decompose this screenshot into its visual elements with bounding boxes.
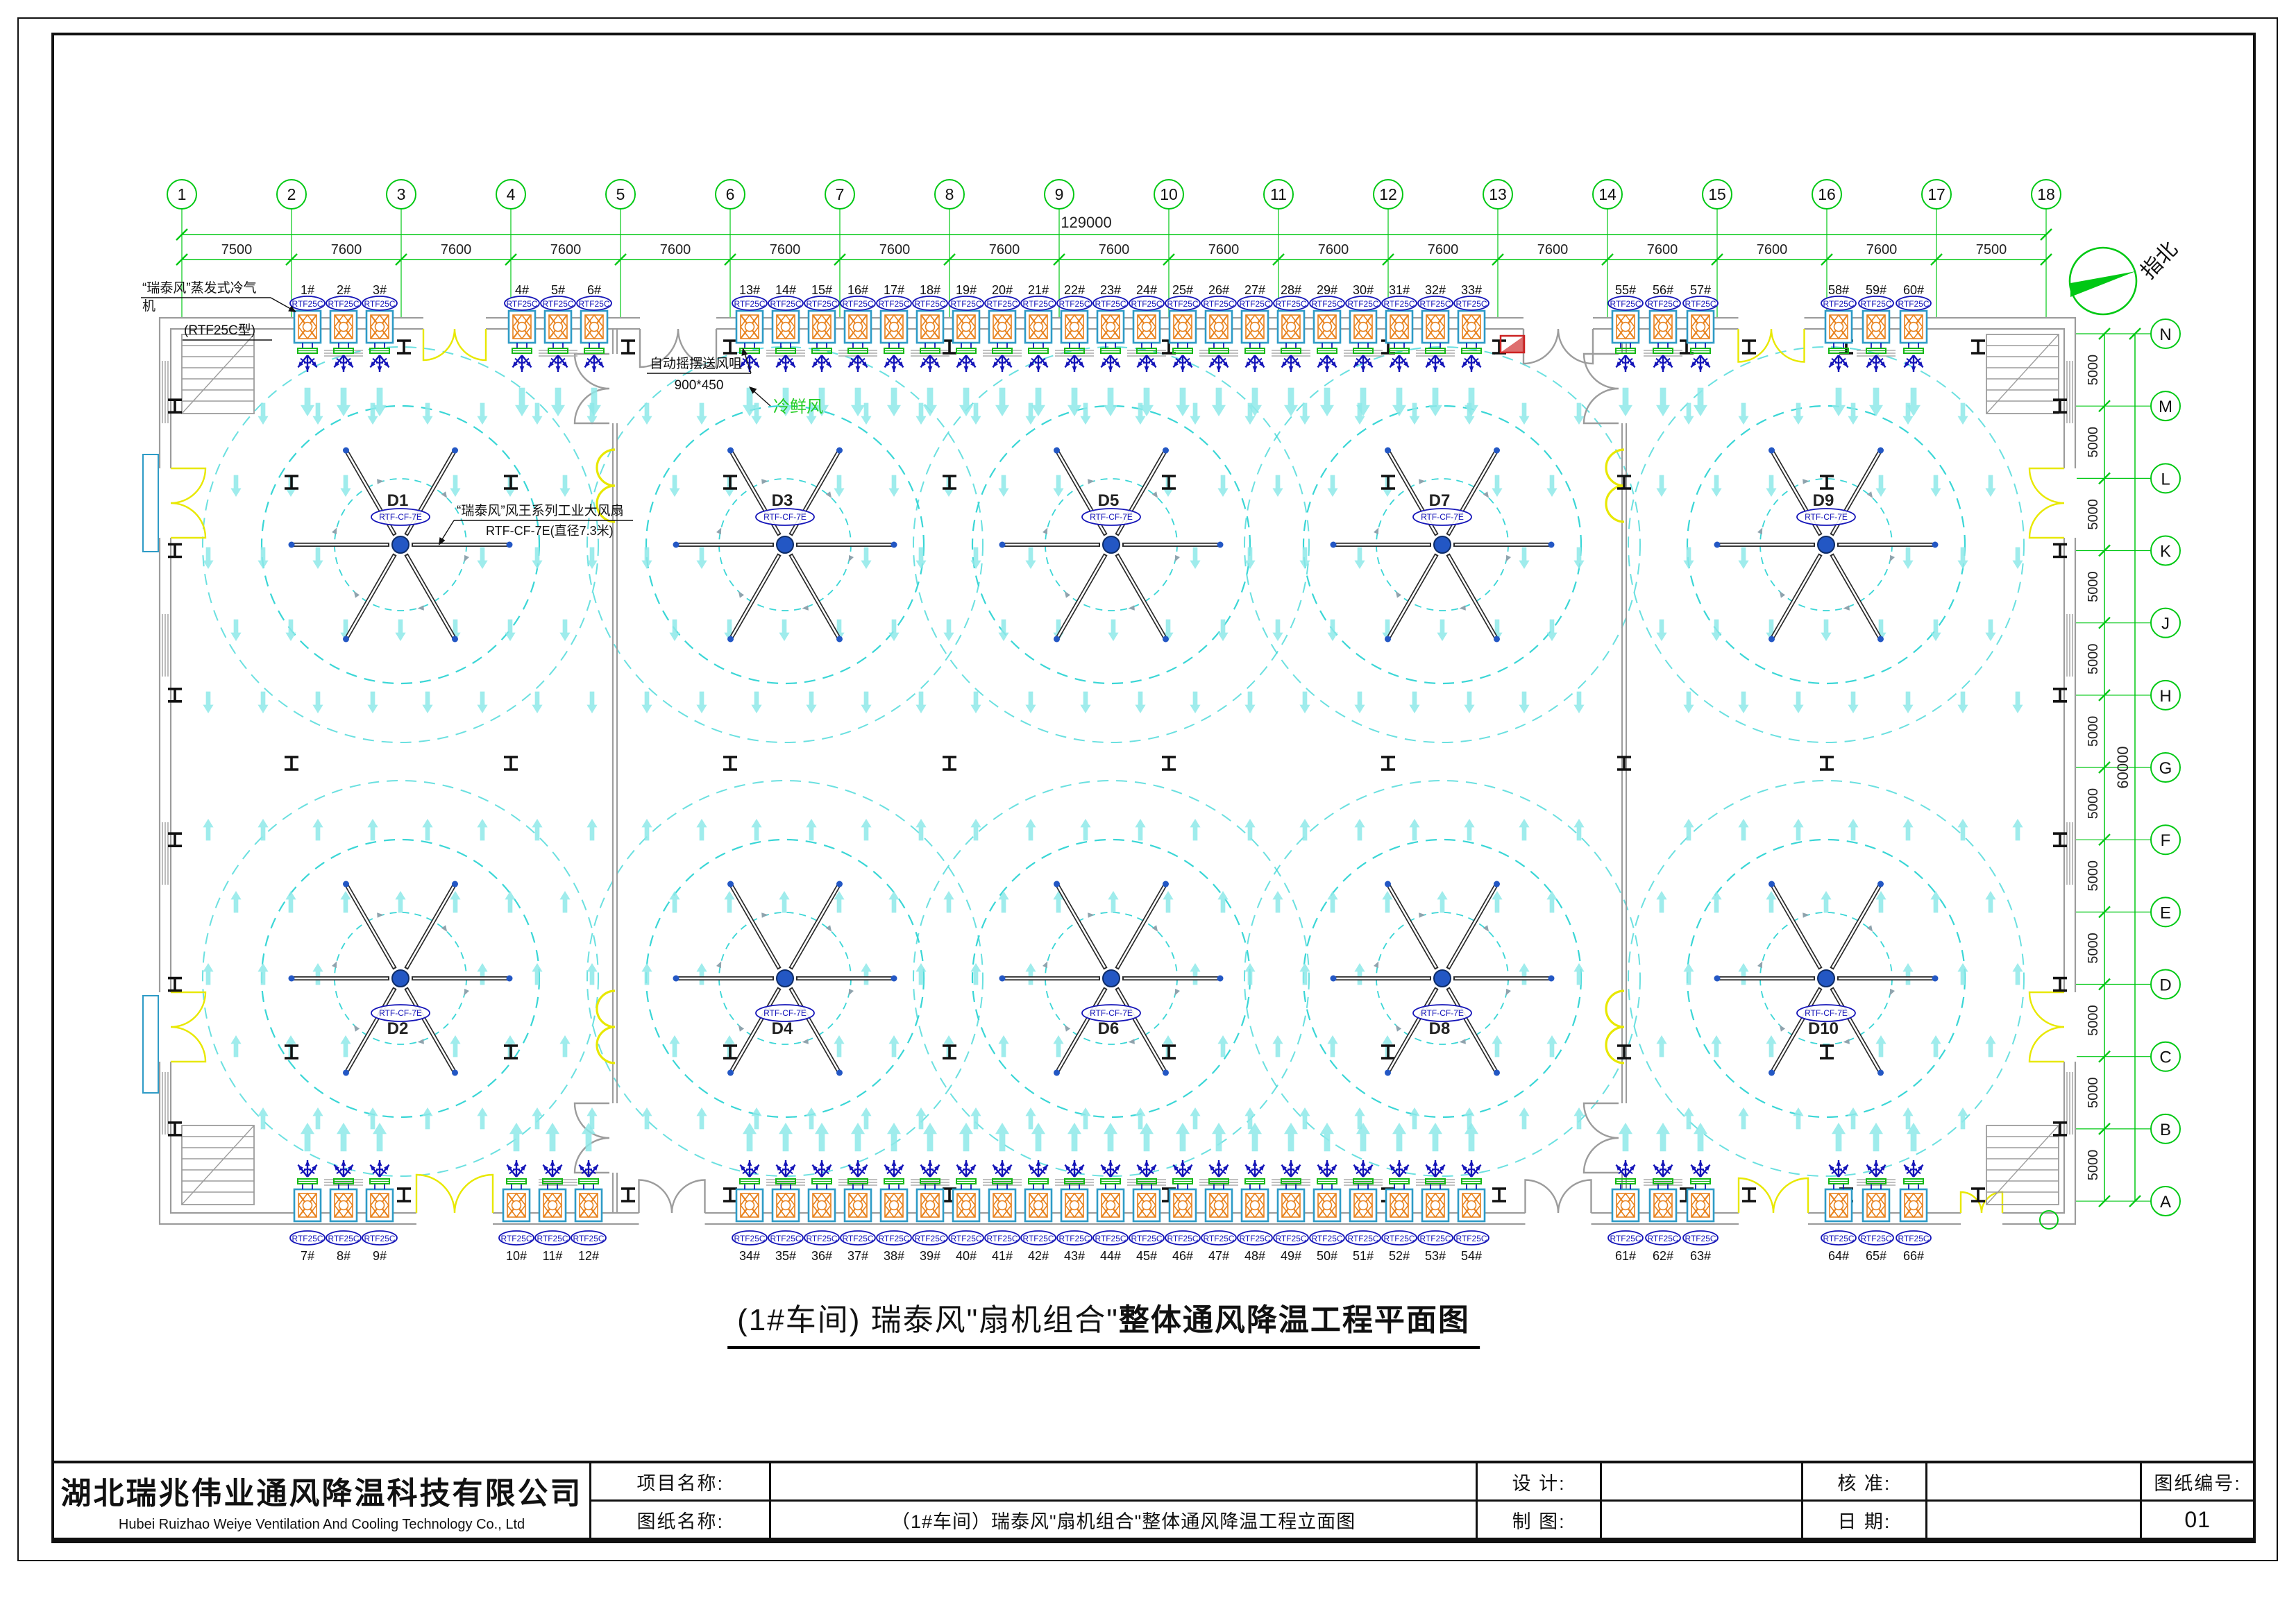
plan-title-emphasis: 整体通风降温工程平面图 (1119, 1303, 1470, 1337)
cooling-unit-38#: RTF25C38# (877, 1123, 911, 1263)
svg-text:61#: 61# (1615, 1249, 1636, 1263)
svg-text:RTF25C: RTF25C (1311, 1234, 1342, 1243)
svg-text:RTF25C: RTF25C (806, 299, 837, 309)
svg-text:25#: 25# (1172, 283, 1193, 297)
cooling-unit-53#: RTF25C53# (1418, 1123, 1453, 1263)
row-bubble-H: H (2151, 681, 2180, 710)
svg-text:5000: 5000 (2086, 427, 2101, 458)
exterior-louver (143, 996, 158, 1093)
plan-title: (1#车间) 瑞泰风"扇机组合"整体通风降温工程平面图 (727, 1295, 1480, 1349)
cooling-unit-16#: RTF25C16# (841, 283, 875, 416)
row-bubble-D: D (2151, 970, 2180, 999)
svg-text:5000: 5000 (2086, 571, 2101, 602)
svg-text:F: F (2161, 831, 2171, 850)
svg-text:RTF25C: RTF25C (1022, 299, 1054, 309)
cooling-unit-15#: RTF25C15# (804, 283, 839, 416)
window (162, 1072, 168, 1135)
svg-text:RTF25C: RTF25C (1610, 299, 1641, 309)
svg-text:RTF25C: RTF25C (1647, 299, 1678, 309)
cooling-unit-60#: RTF25C60# (1896, 283, 1931, 416)
svg-text:17#: 17# (884, 283, 904, 297)
svg-text:D4: D4 (772, 1019, 793, 1038)
window (2067, 614, 2073, 677)
svg-text:6#: 6# (587, 283, 601, 297)
svg-text:RTF25C: RTF25C (364, 299, 395, 309)
staircase-bottom-left (182, 1125, 254, 1205)
svg-text:5000: 5000 (2086, 716, 2101, 747)
svg-text:K: K (2160, 543, 2171, 561)
svg-text:5000: 5000 (2086, 1150, 2101, 1181)
svg-text:43#: 43# (1064, 1249, 1085, 1263)
steel-column (1381, 757, 1395, 770)
svg-text:26#: 26# (1208, 283, 1229, 297)
door-bottom-1 (416, 1175, 493, 1225)
steel-column (1971, 341, 1985, 353)
svg-text:7600: 7600 (989, 242, 1020, 257)
svg-text:D5: D5 (1098, 491, 1120, 510)
staircase-top-left (182, 334, 254, 414)
svg-text:7600: 7600 (660, 242, 691, 257)
steel-column (1492, 1189, 1506, 1201)
svg-text:20#: 20# (992, 283, 1013, 297)
svg-text:63#: 63# (1690, 1249, 1711, 1263)
svg-text:N: N (2159, 325, 2171, 344)
svg-text:RTF25C: RTF25C (1347, 1234, 1378, 1243)
draft-label: 制 图: (1478, 1502, 1601, 1538)
column-bubble-8: 8 (935, 180, 964, 209)
north-needle (2070, 271, 2136, 297)
door-top-1 (423, 316, 486, 360)
svg-text:5000: 5000 (2086, 860, 2101, 892)
column-bubble-18: 18 (2032, 180, 2061, 209)
svg-text:5000: 5000 (2086, 644, 2101, 675)
cooling-unit-46#: RTF25C46# (1165, 1123, 1200, 1263)
svg-text:22#: 22# (1064, 283, 1085, 297)
door-top-4 (1739, 316, 1805, 362)
window (2067, 361, 2073, 423)
svg-text:39#: 39# (920, 1249, 940, 1263)
column-bubble-5: 5 (606, 180, 635, 209)
column-bubble-6: 6 (716, 180, 745, 209)
svg-text:31#: 31# (1389, 283, 1410, 297)
door-right-1 (2029, 468, 2077, 538)
steel-column (1742, 341, 1756, 353)
svg-text:900*450: 900*450 (675, 378, 724, 393)
cooling-unit-29#: RTF25C29# (1310, 283, 1344, 416)
svg-text:24#: 24# (1136, 283, 1157, 297)
draft-value (1602, 1502, 1800, 1538)
company-name-en: Hubei Ruizhao Weiye Ventilation And Cool… (119, 1517, 525, 1533)
svg-text:7500: 7500 (1976, 242, 2007, 257)
steel-column (1971, 1189, 1985, 1201)
svg-text:“瑞泰风”蒸发式冷气: “瑞泰风”蒸发式冷气 (142, 280, 257, 296)
svg-text:G: G (2159, 759, 2172, 778)
cooling-unit-45#: RTF25C45# (1129, 1123, 1164, 1263)
svg-text:46#: 46# (1172, 1249, 1193, 1263)
svg-text:60000: 60000 (2114, 746, 2132, 788)
svg-text:16#: 16# (847, 283, 868, 297)
row-bubble-K: K (2151, 536, 2180, 566)
svg-text:RTF-CF-7E: RTF-CF-7E (1421, 1008, 1464, 1018)
door-partition-1-bottom (575, 1103, 622, 1173)
title-block-design-values (1602, 1463, 1803, 1538)
column-bubble-10: 10 (1154, 180, 1183, 209)
svg-text:7600: 7600 (1647, 242, 1678, 257)
date-label: 日 期: (1803, 1502, 1926, 1538)
steel-column (1162, 1046, 1176, 1058)
row-bubble-E: E (2151, 897, 2180, 926)
cooling-unit-11#: RTF25C11# (535, 1123, 570, 1263)
svg-text:RTF25C: RTF25C (1311, 299, 1342, 309)
svg-text:8#: 8# (337, 1249, 351, 1263)
svg-text:RTF25C: RTF25C (1167, 1234, 1198, 1243)
svg-text:7600: 7600 (1537, 242, 1569, 257)
svg-text:RTF25C: RTF25C (542, 299, 573, 309)
svg-text:18#: 18# (920, 283, 940, 297)
svg-text:7600: 7600 (1866, 242, 1898, 257)
svg-text:D3: D3 (772, 491, 793, 510)
steel-column (723, 1189, 737, 1201)
svg-text:D: D (2159, 976, 2171, 995)
svg-text:RTF25C: RTF25C (1058, 299, 1090, 309)
steel-column (943, 476, 956, 488)
cooling-unit-14#: RTF25C14# (768, 283, 803, 416)
svg-text:60#: 60# (1903, 283, 1924, 297)
title-block-design-labels: 设 计: 制 图: (1478, 1463, 1603, 1538)
svg-text:66#: 66# (1903, 1249, 1924, 1263)
svg-text:RTF25C: RTF25C (1131, 299, 1162, 309)
svg-text:RTF25C: RTF25C (1203, 299, 1234, 309)
design-label: 设 计: (1478, 1463, 1601, 1502)
row-bubble-J: J (2151, 609, 2180, 638)
title-block: 湖北瑞兆伟业通风降温科技有限公司 Hubei Ruizhao Weiye Ven… (51, 1461, 2256, 1540)
svg-text:12#: 12# (578, 1249, 599, 1263)
svg-text:(RTF25C型): (RTF25C型) (184, 323, 255, 338)
svg-text:8: 8 (945, 185, 954, 203)
svg-text:5000: 5000 (2086, 1005, 2101, 1036)
svg-text:29#: 29# (1317, 283, 1337, 297)
cooling-unit-54#: RTF25C54# (1454, 1123, 1489, 1263)
svg-text:15: 15 (1708, 185, 1726, 203)
steel-column (285, 1046, 298, 1058)
cooling-unit-4#: RTF25C4# (505, 283, 539, 416)
svg-text:RTF25C: RTF25C (1383, 1234, 1415, 1243)
cooling-unit-61#: RTF25C61# (1608, 1123, 1643, 1263)
svg-text:49#: 49# (1281, 1249, 1301, 1263)
svg-text:48#: 48# (1244, 1249, 1265, 1263)
svg-text:RTF25C: RTF25C (1455, 1234, 1487, 1243)
row-bubble-G: G (2151, 753, 2180, 782)
svg-text:A: A (2160, 1193, 2171, 1212)
cooling-unit-42#: RTF25C42# (1021, 1123, 1056, 1263)
svg-text:RTF25C: RTF25C (1095, 299, 1126, 309)
column-bubble-14: 14 (1593, 180, 1622, 209)
svg-text:冷鲜风: 冷鲜风 (773, 398, 823, 416)
steel-column (397, 1189, 411, 1201)
svg-text:RTF25C: RTF25C (1898, 1234, 1929, 1243)
svg-text:52#: 52# (1389, 1249, 1410, 1263)
cooling-unit-64#: RTF25C64# (1821, 1123, 1856, 1263)
cooling-unit-37#: RTF25C37# (841, 1123, 875, 1263)
svg-text:5#: 5# (551, 283, 565, 297)
svg-text:28#: 28# (1281, 283, 1301, 297)
svg-text:RTF25C: RTF25C (950, 1234, 981, 1243)
cooling-unit-62#: RTF25C62# (1646, 1123, 1680, 1263)
column-bubble-1: 1 (167, 180, 196, 209)
door-partition-1-top (575, 354, 622, 423)
cooling-unit-22#: RTF25C22# (1057, 283, 1092, 416)
steel-column (621, 341, 635, 353)
floor-plan-drawing: 1234567891011121314151617181290007500760… (0, 0, 2296, 1623)
svg-text:RTF25C: RTF25C (1275, 299, 1306, 309)
svg-text:2#: 2# (337, 283, 351, 297)
plan-title-prefix: (1#车间) 瑞泰风"扇机组合" (737, 1303, 1119, 1337)
svg-text:E: E (2160, 903, 2171, 922)
svg-text:12: 12 (1379, 185, 1397, 203)
cooling-unit-49#: RTF25C49# (1274, 1123, 1308, 1263)
svg-text:9#: 9# (373, 1249, 387, 1263)
door-left-1 (158, 468, 205, 538)
window (2067, 1072, 2073, 1135)
svg-text:11#: 11# (543, 1249, 563, 1263)
steel-column (943, 1046, 956, 1058)
steel-column (1820, 1046, 1834, 1058)
design-value (1602, 1463, 1800, 1502)
svg-text:RTF25C: RTF25C (1898, 299, 1929, 309)
steel-column (723, 341, 737, 353)
cooling-unit-8#: RTF25C8# (326, 1123, 361, 1263)
cooling-unit-58#: RTF25C58# (1821, 283, 1856, 416)
cooling-unit-2#: RTF25C2# (326, 283, 361, 416)
svg-text:17: 17 (1927, 185, 1945, 203)
svg-text:RTF25C: RTF25C (986, 1234, 1018, 1243)
column-bubble-7: 7 (825, 180, 854, 209)
svg-text:5000: 5000 (2086, 499, 2101, 530)
row-bubble-L: L (2151, 464, 2180, 493)
svg-text:32#: 32# (1425, 283, 1446, 297)
svg-text:27#: 27# (1244, 283, 1265, 297)
svg-text:37#: 37# (847, 1249, 868, 1263)
steel-column (943, 757, 956, 770)
svg-text:7: 7 (836, 185, 845, 203)
cooling-unit-17#: RTF25C17# (877, 283, 911, 416)
cooling-unit-41#: RTF25C41# (985, 1123, 1020, 1263)
svg-text:RTF25C: RTF25C (1419, 299, 1451, 309)
column-bubble-11: 11 (1264, 180, 1293, 209)
svg-text:RTF25C: RTF25C (1685, 1234, 1716, 1243)
svg-text:RTF25C: RTF25C (328, 1234, 359, 1243)
fire-hydrant-symbol (1501, 336, 1524, 352)
svg-text:RTF25C: RTF25C (328, 299, 359, 309)
drawing-name-label: 图纸名称: (591, 1502, 769, 1538)
svg-text:RTF-CF-7E: RTF-CF-7E (379, 1008, 422, 1018)
big-fan-D7: RTF-CF-7ED7 (1331, 448, 1555, 643)
svg-text:RTF25C: RTF25C (1022, 1234, 1054, 1243)
door-bottom-2 (639, 1180, 705, 1226)
cooling-unit-30#: RTF25C30# (1346, 283, 1381, 416)
svg-text:1: 1 (178, 185, 187, 203)
door-right-2 (2029, 992, 2077, 1062)
svg-text:30#: 30# (1353, 283, 1374, 297)
title-block-approve-labels: 核 准: 日 期: (1803, 1463, 1928, 1538)
partition-wall-2 (1622, 329, 1626, 1213)
svg-text:50#: 50# (1317, 1249, 1337, 1263)
window (162, 822, 168, 885)
svg-text:D9: D9 (1813, 491, 1834, 510)
svg-text:47#: 47# (1208, 1249, 1229, 1263)
cooling-unit-26#: RTF25C26# (1201, 283, 1236, 416)
svg-text:RTF25C: RTF25C (734, 299, 765, 309)
svg-text:RTF25C: RTF25C (1095, 1234, 1126, 1243)
cooling-unit-52#: RTF25C52# (1382, 1123, 1417, 1263)
svg-text:D6: D6 (1098, 1019, 1120, 1038)
svg-text:34#: 34# (739, 1249, 760, 1263)
row-bubble-A: A (2151, 1187, 2180, 1216)
cooling-unit-9#: RTF25C9# (362, 1123, 397, 1263)
svg-text:54#: 54# (1461, 1249, 1482, 1263)
big-fan-D1: RTF-CF-7ED1 (289, 448, 513, 643)
svg-text:RTF25C: RTF25C (1860, 1234, 1891, 1243)
north-label: 指北 (2136, 237, 2181, 283)
cooling-unit-32#: RTF25C32# (1418, 283, 1453, 416)
cooling-unit-63#: RTF25C63# (1683, 1123, 1718, 1263)
cooling-unit-12#: RTF25C12# (571, 1123, 606, 1263)
svg-text:129000: 129000 (1061, 214, 1111, 231)
cooling-unit-7#: RTF25C7# (290, 1123, 325, 1263)
steel-column (1742, 1189, 1756, 1201)
svg-text:11: 11 (1270, 185, 1287, 203)
svg-text:33#: 33# (1461, 283, 1482, 297)
svg-text:RTF25C: RTF25C (878, 1234, 909, 1243)
steel-column (1617, 757, 1631, 770)
north-compass: 指北 (2070, 237, 2182, 314)
svg-text:RTF25C: RTF25C (292, 1234, 323, 1243)
steel-column (723, 1046, 737, 1058)
svg-text:5000: 5000 (2086, 355, 2101, 386)
svg-text:7600: 7600 (1428, 242, 1459, 257)
staircase-top-right (1986, 334, 2059, 414)
svg-text:5000: 5000 (2086, 788, 2101, 819)
steel-column (1381, 1046, 1395, 1058)
svg-text:RTF25C: RTF25C (806, 1234, 837, 1243)
column-bubble-2: 2 (277, 180, 306, 209)
svg-text:7500: 7500 (221, 242, 253, 257)
sheet-number-value: 01 (2142, 1502, 2253, 1538)
svg-text:23#: 23# (1100, 283, 1121, 297)
svg-text:RTF25C: RTF25C (1647, 1234, 1678, 1243)
svg-text:RTF25C: RTF25C (1419, 1234, 1451, 1243)
svg-text:D10: D10 (1808, 1019, 1839, 1038)
svg-text:C: C (2159, 1048, 2171, 1067)
svg-text:D2: D2 (387, 1019, 409, 1038)
steel-column (1617, 1046, 1631, 1058)
cooling-unit-66#: RTF25C66# (1896, 1123, 1931, 1263)
svg-text:RTF-CF-7E: RTF-CF-7E (1090, 1008, 1133, 1018)
steel-column (285, 476, 298, 488)
big-fan-D5: RTF-CF-7ED5 (999, 448, 1224, 643)
svg-text:RTF25C: RTF25C (292, 299, 323, 309)
steel-column (285, 757, 298, 770)
svg-text:RTF-CF-7E: RTF-CF-7E (1805, 512, 1848, 522)
window (2067, 822, 2073, 885)
svg-text:7600: 7600 (879, 242, 911, 257)
svg-text:45#: 45# (1136, 1249, 1157, 1263)
svg-text:58#: 58# (1828, 283, 1849, 297)
row-bubble-F: F (2151, 825, 2180, 854)
svg-text:19#: 19# (956, 283, 977, 297)
row-bubble-B: B (2151, 1114, 2180, 1144)
svg-text:65#: 65# (1866, 1249, 1886, 1263)
column-bubble-12: 12 (1374, 180, 1403, 209)
svg-text:13: 13 (1489, 185, 1507, 203)
svg-text:3#: 3# (373, 283, 387, 297)
cooling-unit-35#: RTF25C35# (768, 1123, 803, 1263)
svg-text:RTF25C: RTF25C (1383, 299, 1415, 309)
door-bottom-3 (1526, 1180, 1592, 1226)
svg-text:D1: D1 (387, 491, 409, 510)
cooling-unit-6#: RTF25C6# (577, 283, 611, 416)
cooling-unit-19#: RTF25C19# (949, 283, 984, 416)
svg-text:RTF25C: RTF25C (914, 299, 945, 309)
cooling-unit-10#: RTF25C10# (499, 1123, 534, 1263)
svg-text:10: 10 (1160, 185, 1178, 203)
cooling-unit-65#: RTF25C65# (1859, 1123, 1893, 1263)
cooling-unit-3#: RTF25C3# (362, 283, 397, 416)
svg-text:35#: 35# (775, 1249, 796, 1263)
cooling-unit-28#: RTF25C28# (1274, 283, 1308, 416)
column-bubble-9: 9 (1045, 180, 1074, 209)
svg-text:15#: 15# (811, 283, 832, 297)
svg-text:38#: 38# (884, 1249, 904, 1263)
svg-text:RTF25C: RTF25C (1131, 1234, 1162, 1243)
svg-text:RTF25C: RTF25C (1685, 299, 1716, 309)
svg-text:RTF25C: RTF25C (986, 299, 1018, 309)
svg-text:51#: 51# (1353, 1249, 1374, 1263)
svg-text:14: 14 (1598, 185, 1617, 203)
steel-column (1820, 476, 1834, 488)
svg-text:36#: 36# (811, 1249, 832, 1263)
cooling-unit-56#: RTF25C56# (1646, 283, 1680, 416)
cooling-unit-1#: RTF25C1# (290, 283, 325, 416)
svg-text:5000: 5000 (2086, 1078, 2101, 1109)
svg-text:16: 16 (1818, 185, 1836, 203)
svg-text:RTF25C: RTF25C (1167, 299, 1198, 309)
airflow-field (203, 347, 2024, 1176)
svg-text:7600: 7600 (1208, 242, 1240, 257)
svg-text:“瑞泰风”风王系列工业大风扇: “瑞泰风”风王系列工业大风扇 (457, 503, 624, 518)
svg-text:RTF-CF-7E(直径7.3米): RTF-CF-7E(直径7.3米) (486, 524, 614, 538)
cooling-unit-39#: RTF25C39# (913, 1123, 947, 1263)
cooling-unit-40#: RTF25C40# (949, 1123, 984, 1263)
svg-text:RTF25C: RTF25C (506, 299, 537, 309)
row-bubble-N: N (2151, 319, 2180, 348)
svg-text:RTF25C: RTF25C (573, 1234, 604, 1243)
page: { "sheet": { "plan_title": { "prefix": "… (0, 0, 2296, 1623)
svg-text:RTF25C: RTF25C (364, 1234, 395, 1243)
exterior-louver (143, 454, 158, 552)
svg-text:机: 机 (142, 298, 155, 314)
svg-text:RTF25C: RTF25C (1203, 1234, 1234, 1243)
big-fan-D3: RTF-CF-7ED3 (673, 448, 897, 643)
approve-value (1927, 1463, 2140, 1502)
svg-text:RTF25C: RTF25C (578, 299, 609, 309)
approve-label: 核 准: (1803, 1463, 1926, 1502)
svg-text:J: J (2161, 615, 2170, 634)
svg-text:RTF25C: RTF25C (1455, 299, 1487, 309)
svg-text:41#: 41# (992, 1249, 1013, 1263)
svg-text:D8: D8 (1429, 1019, 1451, 1038)
svg-text:L: L (2161, 470, 2170, 488)
